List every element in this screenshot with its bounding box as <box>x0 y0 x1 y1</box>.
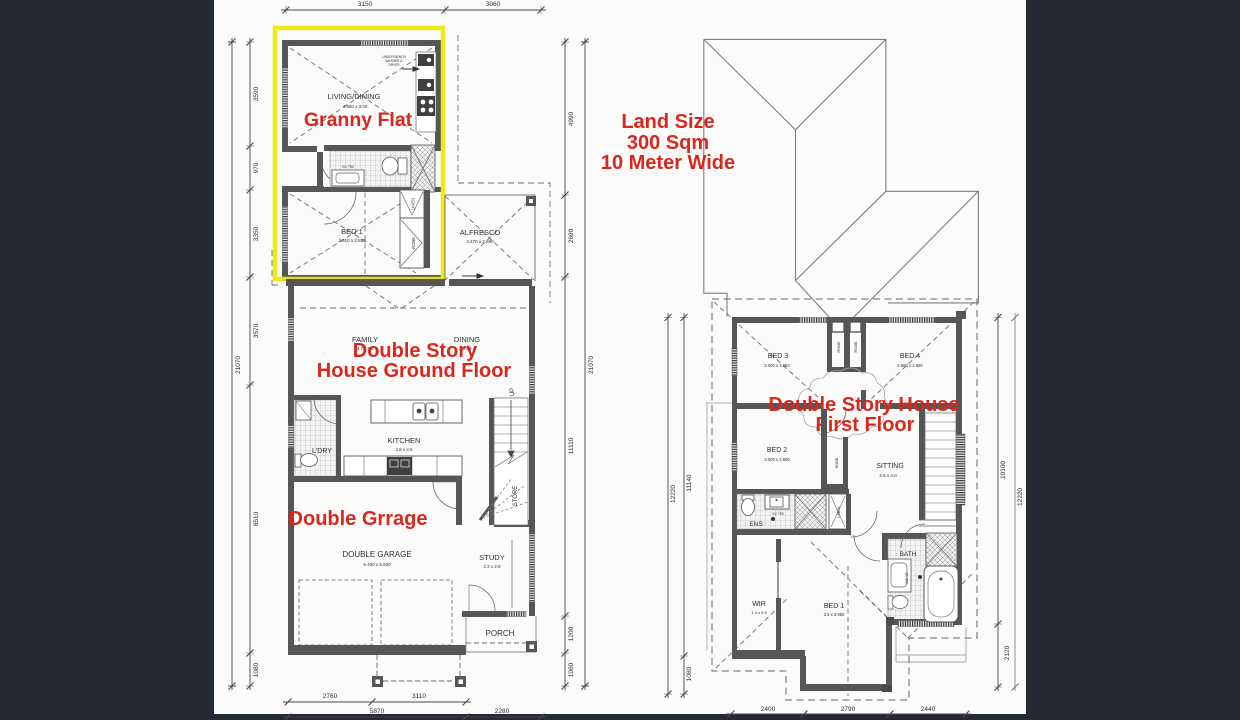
svg-text:SV 750: SV 750 <box>342 165 354 169</box>
svg-text:3110: 3110 <box>412 693 426 700</box>
svg-text:PORCH: PORCH <box>486 629 515 638</box>
svg-text:4990: 4990 <box>568 111 575 126</box>
svg-text:3.8 x 2.5: 3.8 x 2.5 <box>395 447 413 452</box>
svg-text:LINEN: LINEN <box>411 198 416 210</box>
svg-text:8510: 8510 <box>253 511 260 526</box>
svg-text:LINEN: LINEN <box>837 506 841 517</box>
svg-text:12220: 12220 <box>1017 488 1024 506</box>
svg-text:BED 1: BED 1 <box>824 603 844 610</box>
svg-text:3.5 x 3.950: 3.5 x 3.950 <box>824 612 845 617</box>
svg-text:UP: UP <box>510 388 516 396</box>
svg-text:1060: 1060 <box>568 662 575 677</box>
svg-text:1.4 x 3.9: 1.4 x 3.9 <box>751 610 767 615</box>
svg-text:12220: 12220 <box>670 485 677 503</box>
svg-text:2.6 x 4.0: 2.6 x 4.0 <box>879 473 897 478</box>
svg-text:LIVING/DINING: LIVING/DINING <box>328 92 381 101</box>
svg-text:3.000 x 3.600: 3.000 x 3.600 <box>764 363 790 368</box>
svg-text:21070: 21070 <box>235 356 242 374</box>
svg-text:2440: 2440 <box>921 706 936 713</box>
svg-text:2.980 x 2.800: 2.980 x 2.800 <box>897 363 923 368</box>
svg-text:SV 750: SV 750 <box>772 512 784 516</box>
svg-text:2690: 2690 <box>568 228 575 243</box>
svg-text:11110: 11110 <box>568 437 575 454</box>
svg-text:1200: 1200 <box>568 626 575 641</box>
svg-text:Land Size: Land Size <box>621 111 714 133</box>
svg-text:1080: 1080 <box>686 666 693 681</box>
svg-text:WIR: WIR <box>752 601 766 608</box>
svg-text:BED 3: BED 3 <box>768 353 788 360</box>
svg-text:House Ground Floor: House Ground Floor <box>317 360 512 382</box>
svg-text:1080: 1080 <box>253 662 260 677</box>
svg-text:ROBE: ROBE <box>836 341 841 353</box>
svg-text:21070: 21070 <box>588 356 595 374</box>
svg-text:2790: 2790 <box>841 706 856 713</box>
svg-text:Granny Flat: Granny Flat <box>304 109 413 131</box>
svg-text:ALFRESCO: ALFRESCO <box>460 228 501 237</box>
svg-text:10 Meter Wide: 10 Meter Wide <box>601 152 735 174</box>
svg-text:ROBE: ROBE <box>411 237 416 249</box>
svg-text:ROBE: ROBE <box>853 341 858 353</box>
svg-text:BATH: BATH <box>900 551 917 558</box>
svg-text:900 VB: 900 VB <box>905 572 909 584</box>
svg-text:BED 4: BED 4 <box>900 353 920 360</box>
svg-text:2.2 x 2.8: 2.2 x 2.8 <box>483 564 501 569</box>
svg-text:DOUBLE GARAGE: DOUBLE GARAGE <box>342 550 411 559</box>
svg-text:KITCHEN: KITCHEN <box>388 436 421 445</box>
svg-text:300 Sqm: 300 Sqm <box>627 132 709 154</box>
svg-text:Double Story: Double Story <box>353 340 478 362</box>
svg-text:L'DRY: L'DRY <box>312 448 332 455</box>
svg-text:3060: 3060 <box>486 1 501 8</box>
svg-text:2760: 2760 <box>323 693 338 700</box>
svg-text:BED 1: BED 1 <box>341 227 363 236</box>
svg-text:SITTING: SITTING <box>876 463 904 470</box>
svg-text:10100: 10100 <box>1000 461 1007 479</box>
svg-text:3350: 3350 <box>253 226 260 241</box>
svg-text:2120: 2120 <box>1004 645 1011 660</box>
svg-text:970: 970 <box>253 162 260 173</box>
svg-text:3570: 3570 <box>253 323 260 338</box>
svg-text:DRYER: DRYER <box>388 63 400 67</box>
svg-text:3.910 x 2.850: 3.910 x 2.850 <box>338 238 366 243</box>
svg-text:5870: 5870 <box>370 708 385 715</box>
svg-text:11140: 11140 <box>686 474 693 491</box>
svg-text:Double Grrage: Double Grrage <box>289 508 428 530</box>
svg-text:3150: 3150 <box>358 1 373 8</box>
svg-text:First Floor: First Floor <box>816 414 915 436</box>
svg-text:STORE: STORE <box>513 486 519 507</box>
svg-text:BED 2: BED 2 <box>767 447 787 454</box>
svg-text:3.000 x 2.800: 3.000 x 2.800 <box>764 457 790 462</box>
svg-text:STUDY: STUDY <box>479 553 504 562</box>
svg-text:3590: 3590 <box>253 86 260 101</box>
svg-text:5.400 x 5.930: 5.400 x 5.930 <box>363 562 391 567</box>
svg-text:2400: 2400 <box>761 706 776 713</box>
svg-text:ROBE: ROBE <box>835 457 839 468</box>
svg-text:ENS: ENS <box>749 521 763 528</box>
svg-text:3.470 x 2.690: 3.470 x 2.690 <box>466 239 494 244</box>
svg-text:2280: 2280 <box>495 708 510 715</box>
